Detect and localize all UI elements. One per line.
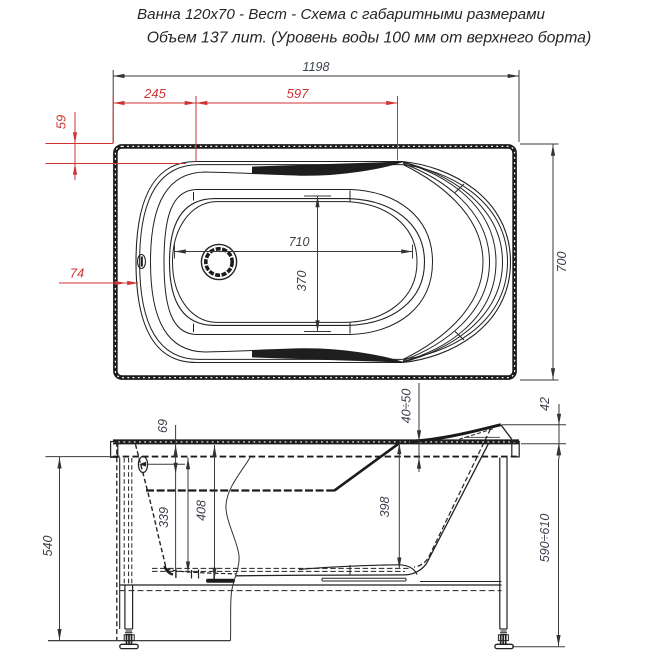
svg-text:597: 597	[287, 86, 309, 101]
svg-text:Объем 137 лит. (Уровень воды 1: Объем 137 лит. (Уровень воды 100 мм от в…	[147, 30, 591, 47]
svg-text:245: 245	[143, 86, 166, 101]
svg-text:74: 74	[70, 266, 84, 281]
svg-text:540: 540	[41, 536, 55, 557]
svg-text:398: 398	[378, 497, 392, 518]
svg-text:700: 700	[555, 252, 569, 273]
svg-text:370: 370	[295, 271, 309, 292]
svg-text:40÷50: 40÷50	[400, 389, 414, 424]
svg-text:590÷610: 590÷610	[538, 514, 552, 563]
svg-text:42: 42	[538, 397, 552, 411]
svg-text:339: 339	[157, 507, 171, 528]
svg-text:59: 59	[54, 115, 69, 129]
svg-text:710: 710	[289, 235, 310, 249]
svg-text:408: 408	[195, 500, 209, 521]
svg-text:1198: 1198	[303, 60, 330, 74]
svg-text:69: 69	[156, 419, 170, 433]
svg-text:Ванна 120x70 - Вест - Схема с: Ванна 120x70 - Вест - Схема с габаритным…	[137, 6, 546, 23]
